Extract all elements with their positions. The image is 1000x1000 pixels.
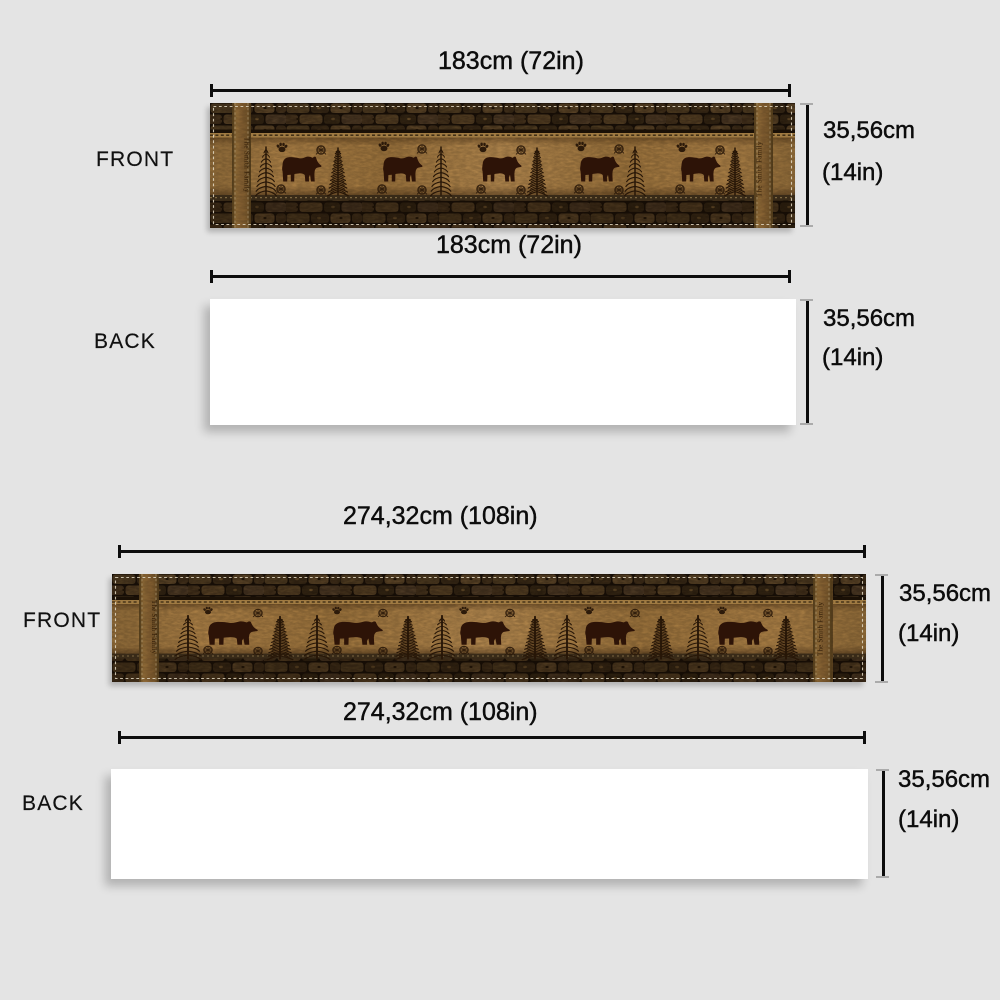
svg-text:The Smith Family: The Smith Family bbox=[817, 602, 825, 656]
svg-text:The Smith Family: The Smith Family bbox=[243, 137, 251, 193]
svg-text:The Smith Family: The Smith Family bbox=[150, 600, 158, 654]
svg-text:The Smith Family: The Smith Family bbox=[756, 141, 764, 197]
